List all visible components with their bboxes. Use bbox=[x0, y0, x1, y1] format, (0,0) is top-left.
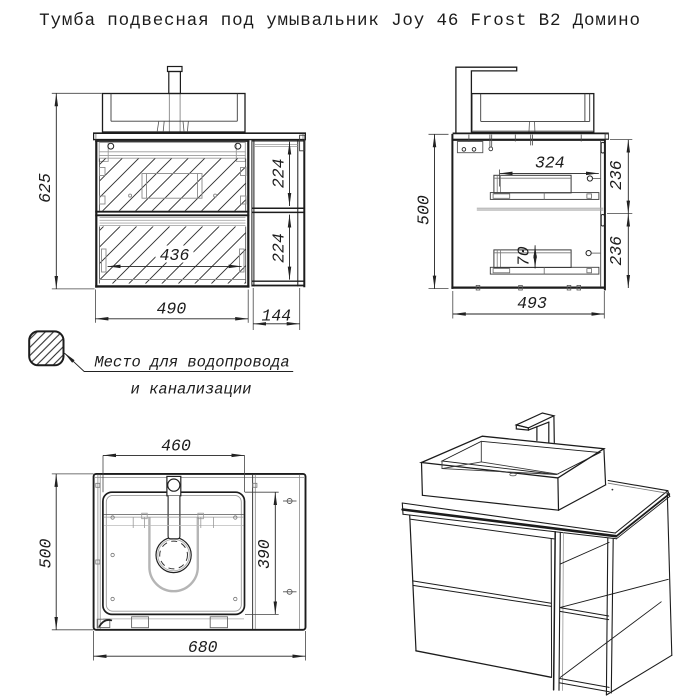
svg-text:236: 236 bbox=[607, 236, 626, 266]
svg-text:324: 324 bbox=[535, 153, 565, 172]
svg-text:390: 390 bbox=[255, 539, 274, 569]
svg-text:236: 236 bbox=[607, 160, 626, 190]
svg-text:436: 436 bbox=[160, 246, 190, 265]
svg-text:625: 625 bbox=[36, 173, 55, 203]
svg-text:144: 144 bbox=[261, 306, 291, 325]
svg-text:493: 493 bbox=[517, 294, 547, 313]
svg-text:Тумба подвесная под умывальник: Тумба подвесная под умывальник Joy 46 Fr… bbox=[39, 11, 641, 31]
svg-text:224: 224 bbox=[269, 158, 288, 188]
svg-text:и канализации: и канализации bbox=[131, 381, 252, 399]
svg-text:224: 224 bbox=[269, 233, 288, 263]
svg-text:680: 680 bbox=[188, 638, 218, 657]
svg-text:460: 460 bbox=[161, 437, 191, 456]
svg-text:Место для водопровода: Место для водопровода bbox=[94, 354, 289, 372]
svg-text:490: 490 bbox=[157, 300, 187, 319]
svg-text:500: 500 bbox=[37, 539, 56, 569]
svg-text:500: 500 bbox=[415, 195, 434, 225]
svg-text:70: 70 bbox=[515, 246, 534, 266]
